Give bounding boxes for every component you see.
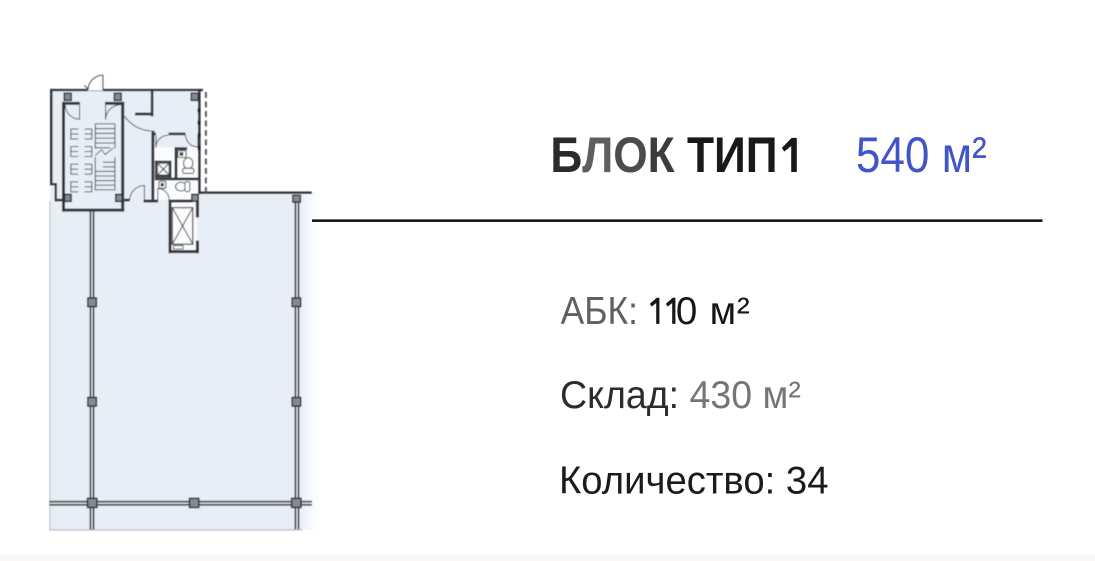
svg-text:540 м²: 540 м²	[856, 126, 987, 182]
svg-text:Количество: 34: Количество: 34	[559, 460, 829, 503]
svg-text:0 м²: 0 м²	[676, 290, 751, 333]
svg-text:БЛОК ТИП: БЛОК ТИП	[550, 128, 777, 184]
svg-text:Склад: 430 м²: Склад: 430 м²	[560, 375, 801, 418]
svg-text:АБК:: АБК:	[561, 290, 638, 333]
